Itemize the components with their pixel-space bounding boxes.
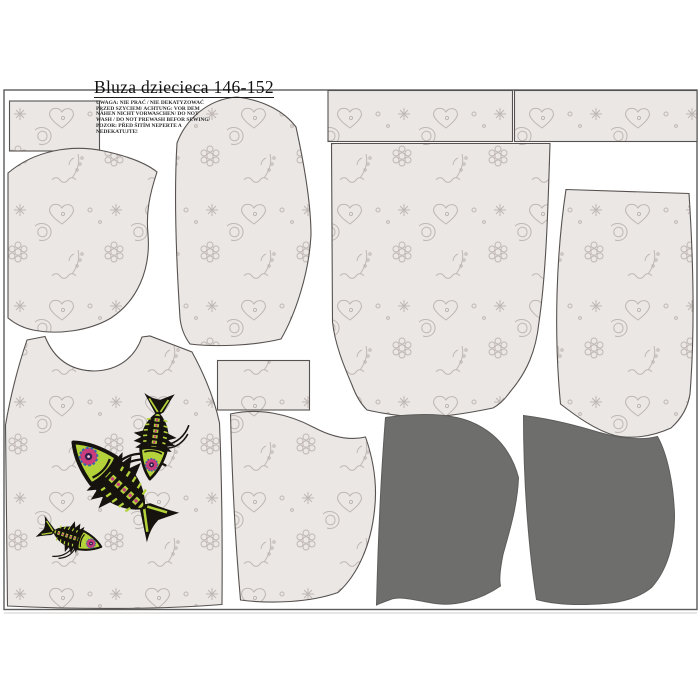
care-instructions: UWAGA: NIE PRAĆ / NIE DEKATYZOWAĆ PRZED … <box>96 101 208 135</box>
piece-small-rect-middle <box>218 361 310 411</box>
piece-sleeve-right <box>557 190 693 438</box>
piece-hood-side-gray-1 <box>377 414 519 605</box>
pattern-sheet: Bluza dziecieca 146-152 UWAGA: NIE PRAĆ … <box>0 0 700 700</box>
care-line: NEDEKATUJTE! <box>96 130 208 136</box>
panel-title: Bluza dziecieca 146-152 <box>94 79 274 98</box>
piece-neck-facing <box>8 148 157 332</box>
piece-small-rect-top-left <box>10 101 100 151</box>
piece-hood-side-printed <box>231 411 376 602</box>
piece-waistband-strip-2 <box>515 91 698 142</box>
piece-waistband-strip-1 <box>328 91 513 142</box>
piece-back-bodice <box>332 144 551 418</box>
piece-hood-side-gray-2 <box>524 416 675 605</box>
